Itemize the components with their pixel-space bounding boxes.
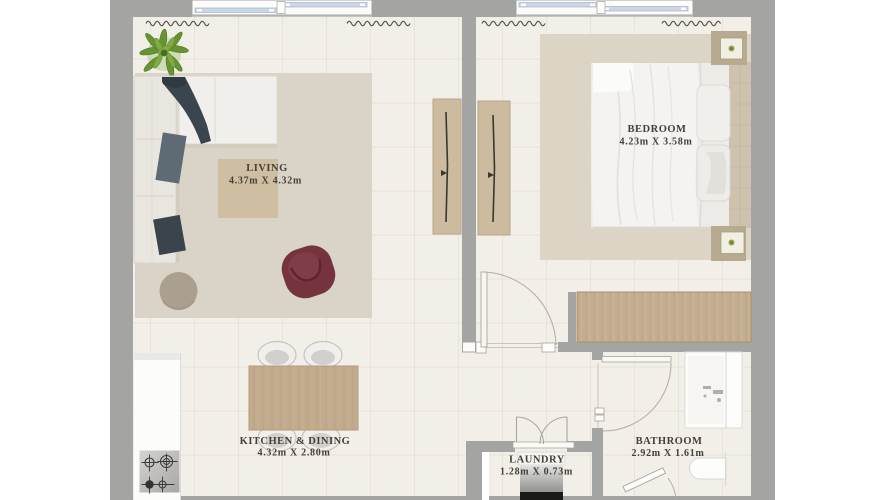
svg-text:2.92m X 1.61m: 2.92m X 1.61m: [632, 448, 705, 459]
svg-text:LIVING: LIVING: [246, 163, 288, 174]
svg-text:4.32m X 2.80m: 4.32m X 2.80m: [258, 448, 331, 459]
svg-text:4.23m X 3.58m: 4.23m X 3.58m: [620, 137, 693, 148]
svg-text:4.37m X 4.32m: 4.37m X 4.32m: [229, 176, 302, 187]
svg-text:KITCHEN & DINING: KITCHEN & DINING: [240, 436, 351, 447]
svg-text:1.28m X 0.73m: 1.28m X 0.73m: [500, 467, 573, 478]
svg-text:BATHROOM: BATHROOM: [636, 436, 703, 447]
svg-text:BEDROOM: BEDROOM: [628, 124, 687, 135]
svg-text:LAUNDRY: LAUNDRY: [509, 455, 565, 466]
